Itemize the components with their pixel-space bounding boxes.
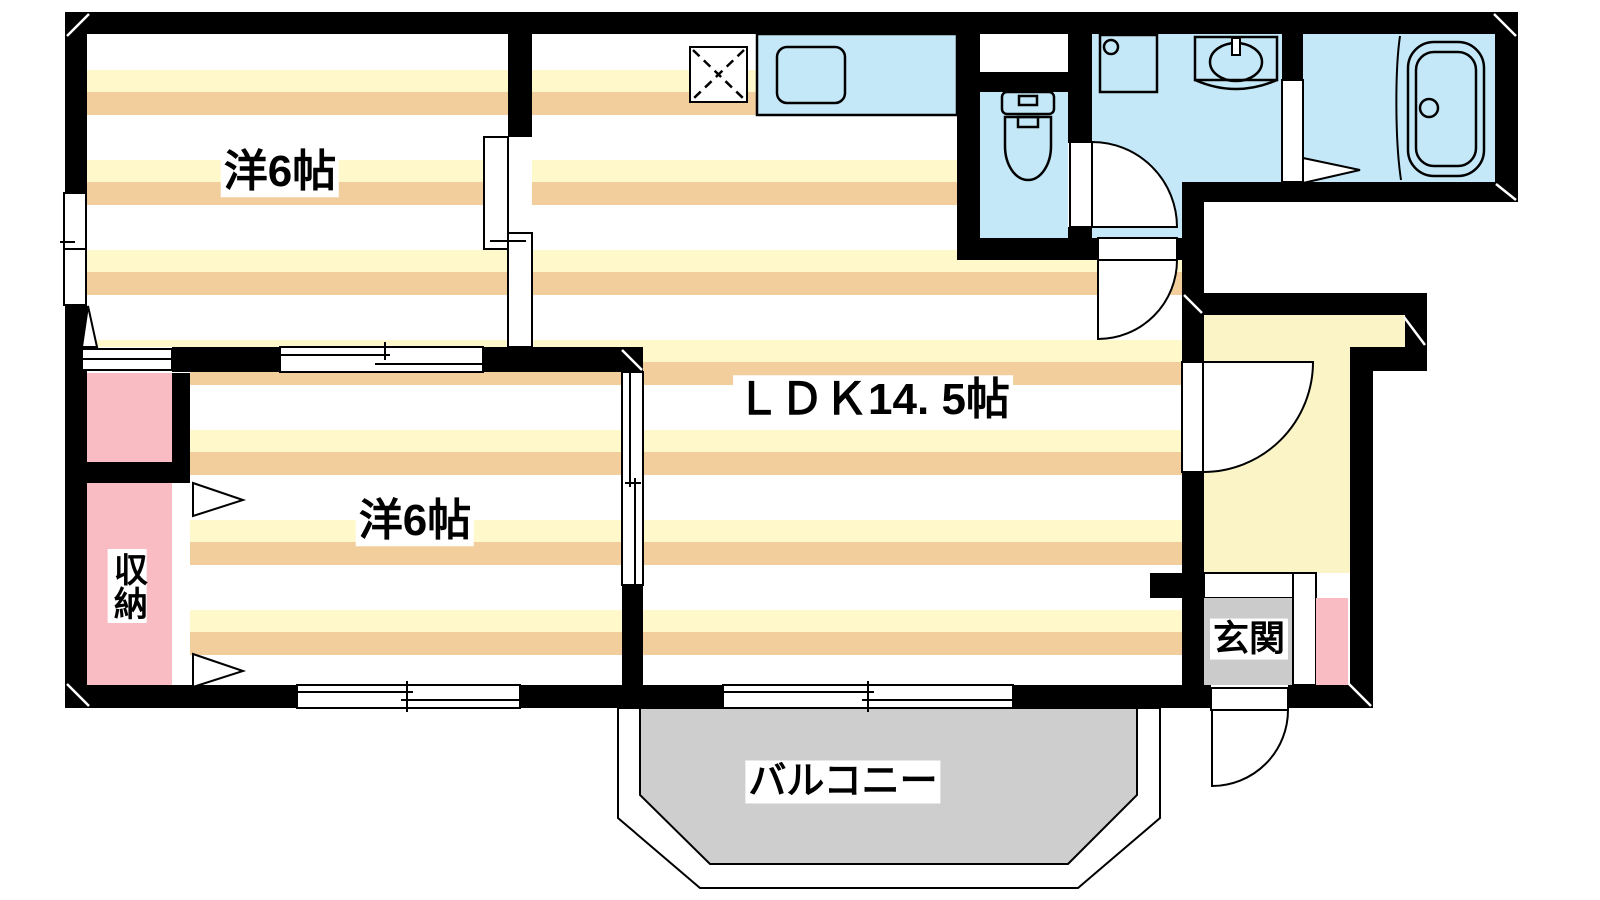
genkan-label: 玄関 bbox=[1210, 619, 1288, 660]
window-room1-left bbox=[60, 193, 86, 305]
ldk-label: ＬＤＫ14. 5帖 bbox=[733, 375, 1013, 425]
window-room2-bottom bbox=[297, 681, 520, 712]
room2-label: 洋6帖 bbox=[356, 496, 474, 546]
room1-label: 洋6帖 bbox=[221, 147, 339, 197]
sliding-door-room1-room2 bbox=[280, 342, 483, 372]
balcony-label: バルコニー bbox=[745, 760, 940, 803]
shoe-cabinet bbox=[1316, 598, 1348, 685]
closet-upper-door bbox=[82, 349, 172, 370]
entrance-step bbox=[1204, 573, 1293, 598]
range-space-icon bbox=[690, 47, 747, 102]
sliding-door-room2-ldk bbox=[622, 372, 643, 585]
floor-plan: 洋6帖 洋6帖 ＬＤＫ14. 5帖 収納 玄関 バルコニー bbox=[0, 0, 1600, 900]
genkan-side-strip bbox=[1293, 573, 1316, 685]
closet-upper bbox=[82, 373, 172, 462]
kitchen-counter bbox=[757, 34, 957, 115]
entry-door bbox=[1211, 688, 1288, 786]
balcony-sliding-window bbox=[723, 681, 1013, 712]
closet-label: 収納 bbox=[108, 549, 147, 623]
